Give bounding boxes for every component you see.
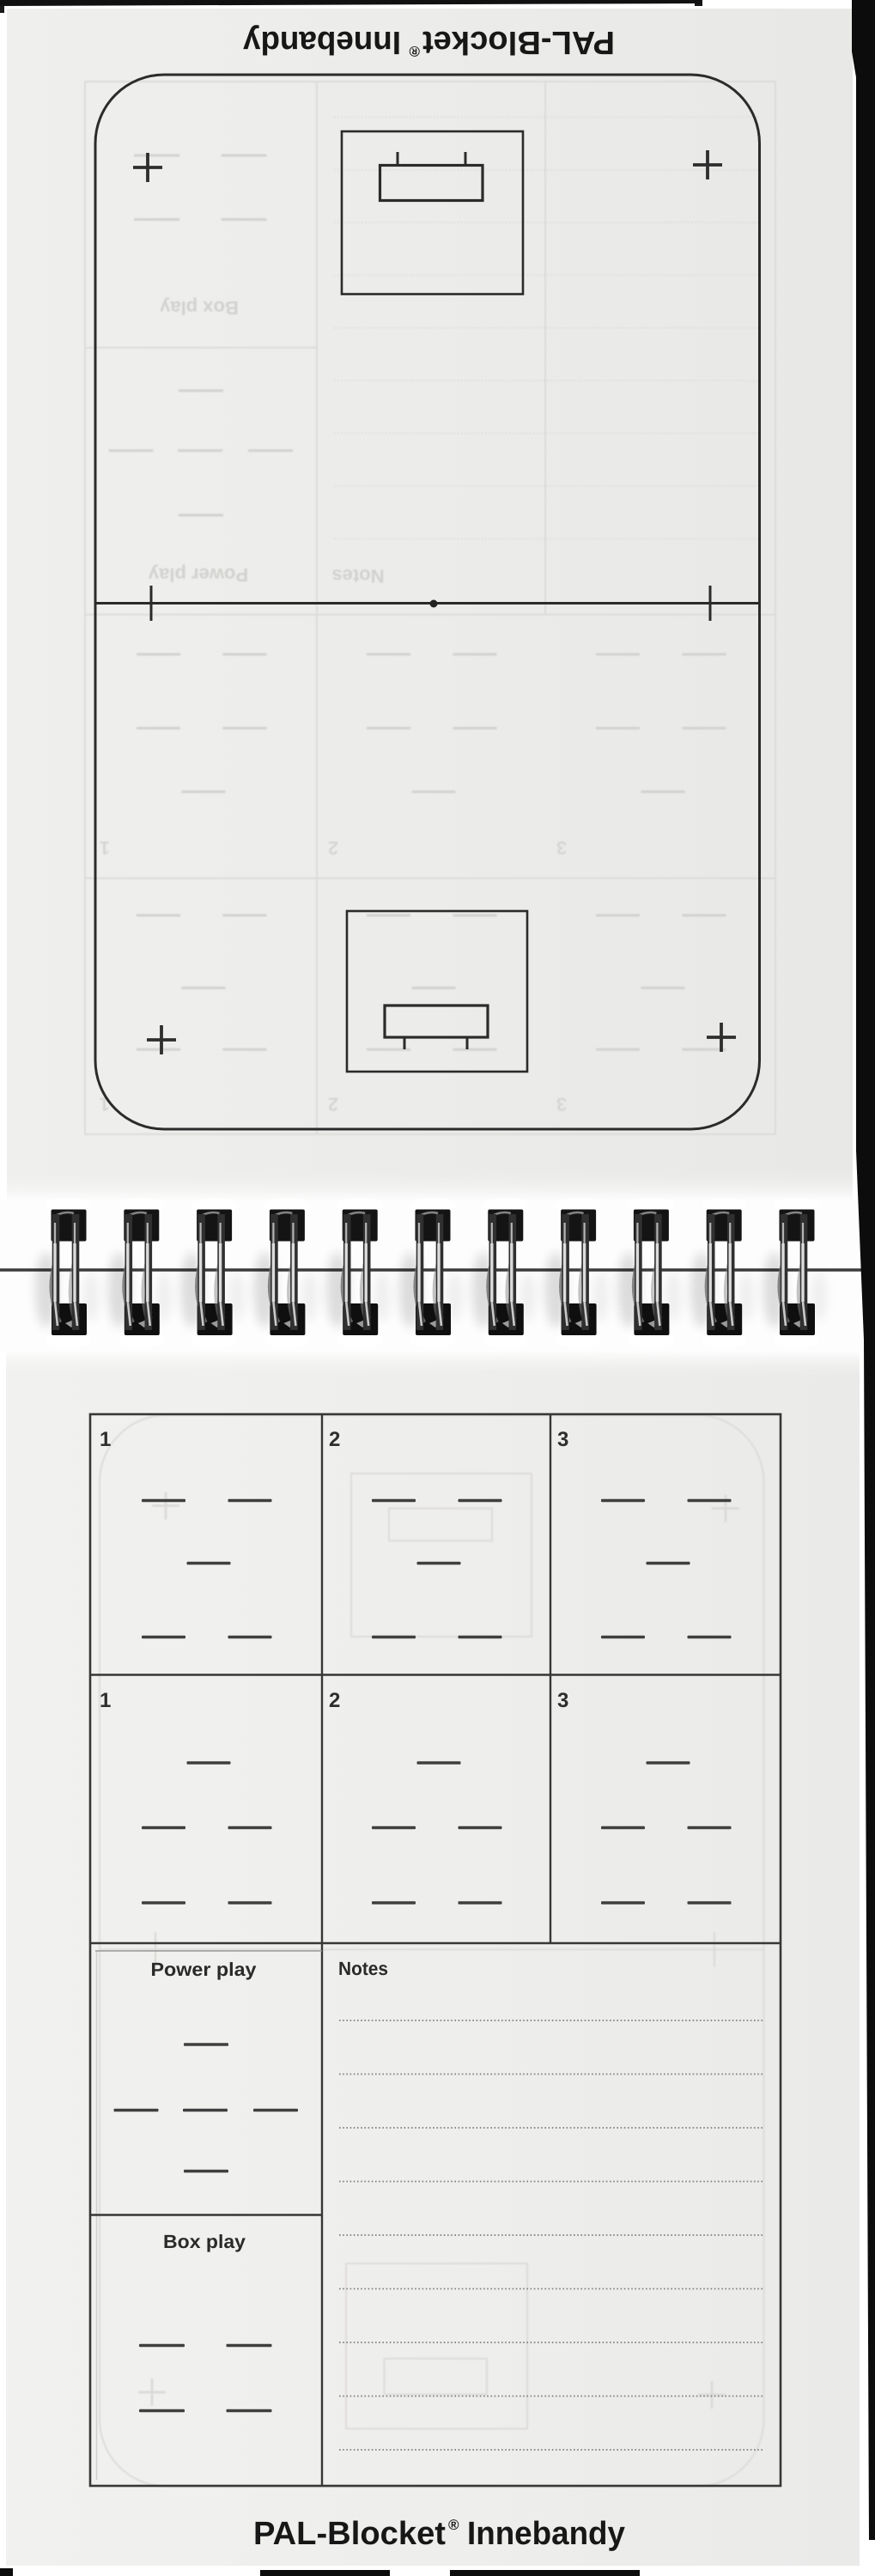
svg-text:2: 2	[329, 1689, 340, 1712]
svg-text:Innebandy: Innebandy	[243, 24, 401, 60]
svg-text:3: 3	[556, 1093, 567, 1115]
svg-text:1: 1	[100, 1689, 111, 1712]
svg-text:PAL-Blocket: PAL-Blocket	[422, 24, 615, 60]
svg-text:®: ®	[409, 43, 420, 59]
svg-text:1: 1	[100, 837, 110, 859]
svg-text:Notes: Notes	[338, 1958, 388, 1979]
svg-text:3: 3	[557, 1428, 568, 1451]
svg-text:2: 2	[328, 1093, 338, 1115]
svg-text:Box play: Box play	[163, 2231, 246, 2252]
svg-text:PAL-Blocket: PAL-Blocket	[253, 2516, 446, 2552]
svg-text:Notes: Notes	[331, 566, 384, 587]
svg-text:2: 2	[329, 1428, 340, 1451]
svg-text:Power play: Power play	[151, 1959, 258, 1980]
svg-text:®: ®	[448, 2517, 459, 2533]
svg-text:1: 1	[100, 1428, 111, 1451]
svg-text:Innebandy: Innebandy	[467, 2516, 625, 2552]
svg-text:Power play: Power play	[148, 564, 248, 586]
svg-text:Box play: Box play	[159, 297, 238, 319]
svg-text:2: 2	[328, 837, 338, 859]
svg-text:3: 3	[557, 1689, 568, 1712]
svg-text:3: 3	[556, 837, 567, 859]
